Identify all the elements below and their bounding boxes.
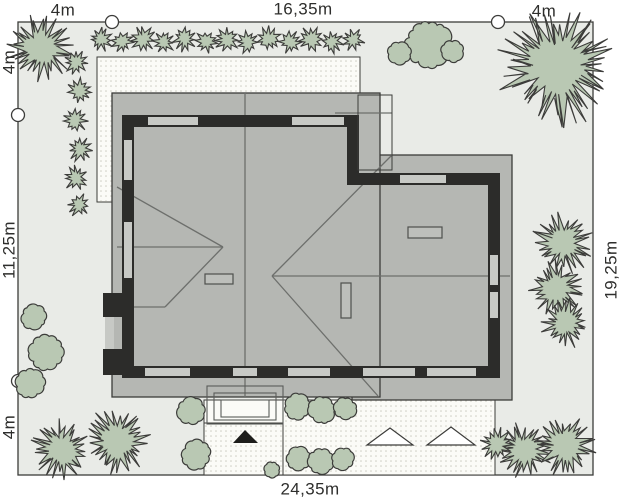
- dim-label-left-bottom: 4m: [1, 415, 18, 439]
- main-roof: [112, 93, 380, 397]
- dim-label-bottom: 24,35m: [280, 481, 339, 498]
- survey-point: [12, 109, 25, 122]
- dim-label-top-left: 4m: [51, 2, 75, 19]
- deciduous-tree: [264, 462, 280, 478]
- chimney: [341, 283, 351, 318]
- dim-label-right: 19,25m: [603, 240, 620, 299]
- dim-label-top-center: 16,35m: [273, 1, 332, 18]
- chimney: [408, 227, 442, 238]
- dim-label-left-middle: 11,25m: [1, 221, 18, 279]
- survey-point: [106, 16, 119, 29]
- survey-point: [492, 16, 505, 29]
- chimney: [205, 274, 233, 284]
- deciduous-tree: [388, 42, 412, 65]
- dim-label-left-top: 4m: [1, 50, 18, 74]
- site-plan-drawing: [0, 0, 620, 500]
- bay-wall: [103, 293, 130, 317]
- deciduous-tree: [441, 41, 464, 63]
- bay-wall: [103, 349, 130, 375]
- dim-label-top-right: 4m: [532, 3, 556, 20]
- site-plan: 4m 16,35m 4m 4m 11,25m 4m 19,25m 24,35m: [0, 0, 620, 500]
- deciduous-tree: [15, 369, 45, 398]
- bay-window: [105, 317, 114, 349]
